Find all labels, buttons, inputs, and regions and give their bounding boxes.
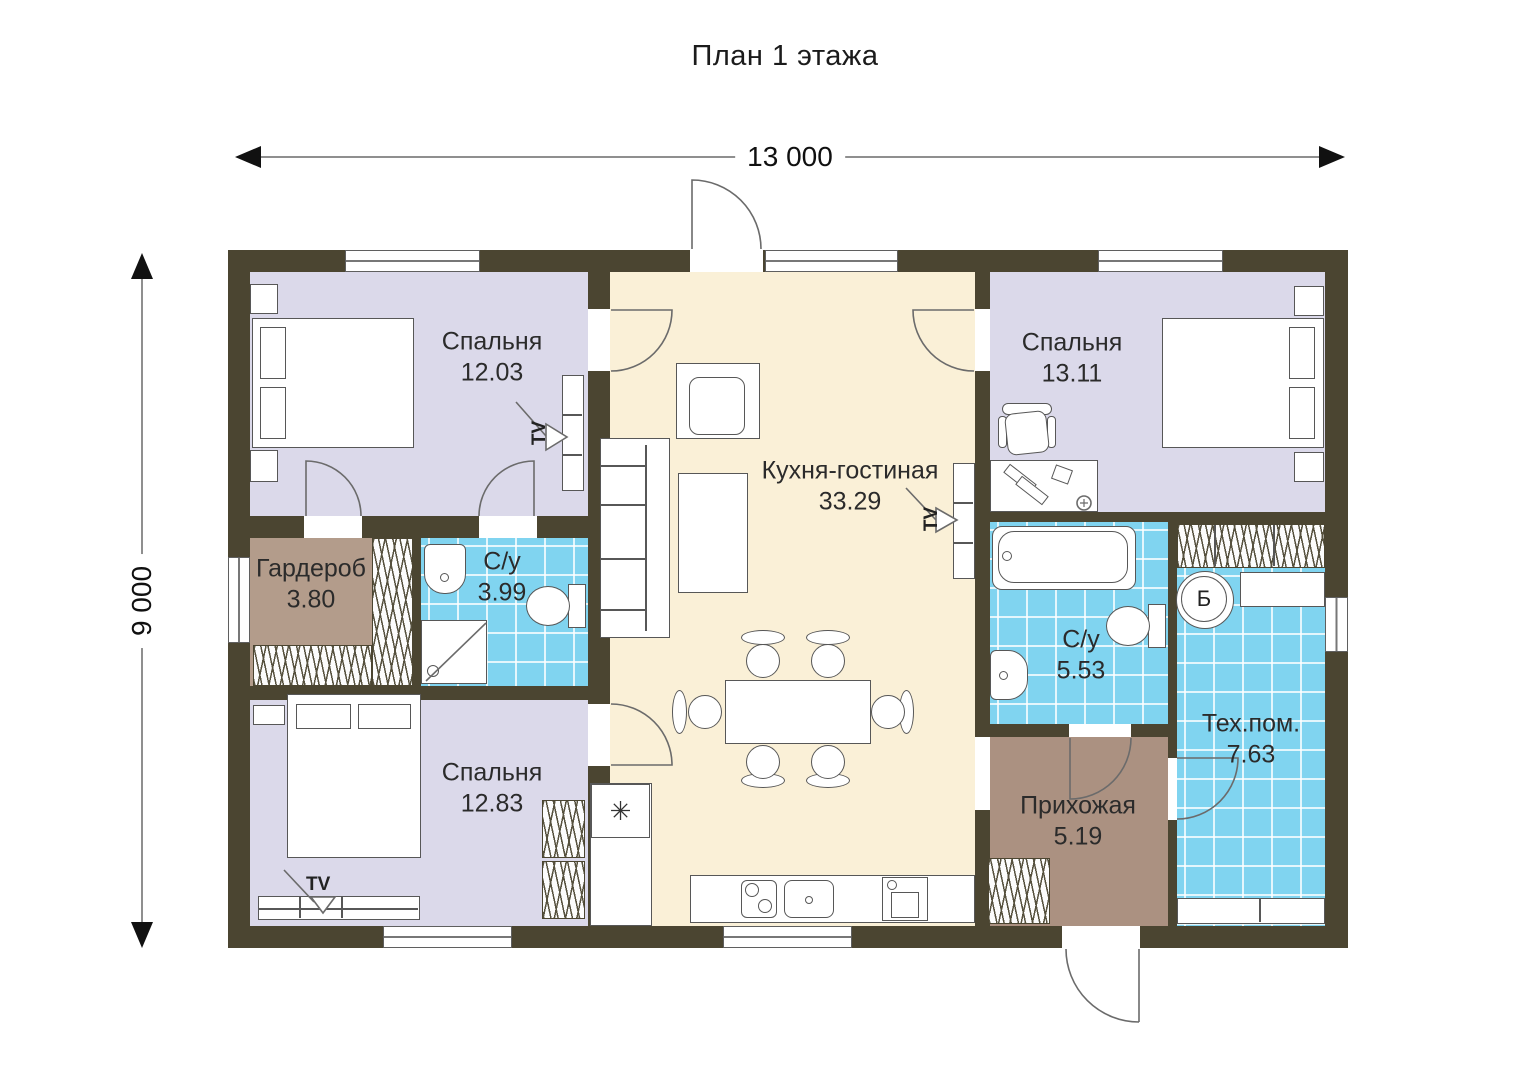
- door-opening: [479, 516, 537, 538]
- pillow: [1289, 327, 1315, 379]
- door-opening: [1069, 724, 1131, 737]
- oven-icon: [882, 877, 928, 921]
- sink-drain: [999, 671, 1008, 680]
- desk-icon: [990, 460, 1098, 512]
- pillow: [260, 327, 286, 379]
- toilet-tank: [1148, 604, 1166, 648]
- room-area: 33.29: [762, 486, 939, 517]
- room-name: Тех.пом.: [1202, 709, 1300, 740]
- tv-label: TV: [529, 421, 551, 445]
- room-name: С/у: [1057, 625, 1106, 656]
- room-name: Спальня: [1022, 328, 1122, 359]
- shelf-line: [299, 897, 301, 918]
- shelf-line: [341, 897, 343, 918]
- room-label-tech: Тех.пом. 7.63: [1202, 709, 1300, 770]
- dining-table: [725, 680, 871, 744]
- dining-chair: [871, 695, 905, 729]
- pillow: [296, 704, 351, 729]
- window: [765, 250, 898, 272]
- room-label-bathroom-large: С/у 5.53: [1057, 625, 1106, 686]
- pillow: [358, 704, 411, 729]
- sofa-line: [601, 465, 645, 467]
- tv-unit: [562, 375, 584, 491]
- shelf-line: [563, 414, 582, 416]
- room-name: Спальня: [442, 758, 542, 789]
- door-opening: [1062, 926, 1140, 948]
- room-name: Гардероб: [256, 554, 366, 585]
- window: [723, 926, 852, 948]
- plan-title: План 1 этажа: [692, 40, 879, 73]
- room-name: С/у: [478, 547, 527, 578]
- sink-icon: [990, 650, 1028, 700]
- sofa-line: [601, 609, 645, 611]
- door-opening: [304, 516, 362, 538]
- tv-label: TV: [306, 874, 330, 896]
- bathtub-icon: [992, 526, 1136, 590]
- tv-unit: [953, 463, 975, 579]
- counter: [1240, 572, 1325, 607]
- closet-divider: [1214, 525, 1216, 566]
- bathtub-faucet: [1002, 551, 1012, 561]
- nightstand: [1294, 452, 1324, 482]
- bed-icon: [287, 694, 421, 858]
- arrow-down-icon: [131, 922, 153, 948]
- room-name: Кухня-гостиная: [762, 456, 939, 487]
- door-opening: [690, 250, 763, 272]
- burner: [745, 883, 759, 897]
- room-name: Прихожая: [1020, 791, 1136, 822]
- dimension-height: 9 000: [127, 253, 157, 948]
- room-label-wardrobe: Гардероб 3.80: [256, 554, 366, 615]
- sink-drain: [440, 573, 449, 582]
- door-opening: [975, 309, 990, 371]
- room-area: 3.80: [256, 584, 366, 615]
- closet-rail-icon: [988, 858, 1050, 924]
- room-area: 3.99: [478, 577, 527, 608]
- oven-door: [891, 892, 919, 918]
- room-area: 5.19: [1020, 821, 1136, 852]
- sofa-line: [601, 558, 645, 560]
- window: [383, 926, 512, 948]
- nightstand: [253, 705, 285, 725]
- toilet-icon: [526, 586, 570, 626]
- window: [1098, 250, 1223, 272]
- door-opening: [588, 309, 610, 371]
- bed-icon: [252, 318, 414, 448]
- chair-back: [741, 630, 785, 645]
- shelf-line: [954, 502, 973, 504]
- closet-rail-icon: [253, 645, 372, 686]
- kitchen-counter: ✳: [590, 783, 652, 926]
- chair-back: [806, 630, 850, 645]
- arrow-right-icon: [1319, 146, 1345, 168]
- shelf-line: [563, 454, 582, 456]
- dining-chair: [811, 745, 845, 779]
- nightstand: [250, 450, 278, 482]
- desk-item: [1051, 464, 1073, 484]
- shower-drain: [427, 665, 439, 677]
- window: [228, 557, 250, 643]
- cabinet-divider: [1259, 899, 1261, 922]
- tv-stand: [258, 896, 420, 920]
- shelf-line: [954, 542, 973, 544]
- door-opening: [1168, 758, 1177, 820]
- coffee-table: [678, 473, 748, 593]
- room-area: 12.83: [442, 788, 542, 819]
- shelf-line: [259, 908, 418, 910]
- dimension-width: 13 000: [235, 142, 1345, 172]
- cabinet: [1177, 898, 1325, 924]
- shower-icon: [421, 620, 487, 684]
- entry-door-arc: [1066, 949, 1139, 1022]
- room-label-bedroom-bottom-left: Спальня 12.83: [442, 758, 542, 819]
- room-area: 13.11: [1022, 358, 1122, 389]
- boiler-icon: Б: [1176, 571, 1234, 629]
- dining-chair: [688, 695, 722, 729]
- arrow-up-icon: [131, 253, 153, 279]
- passage-opening: [975, 737, 990, 810]
- room-label-bedroom-top-left: Спальня 12.03: [442, 327, 542, 388]
- dimension-width-value: 13 000: [735, 141, 845, 173]
- bathtub-inner: [998, 531, 1128, 583]
- arrow-left-icon: [235, 146, 261, 168]
- kitchen-sink-icon: [784, 880, 834, 918]
- sofa-line: [601, 504, 645, 506]
- dining-chair: [746, 745, 780, 779]
- toilet-tank: [568, 584, 586, 628]
- chair-back: [672, 690, 687, 734]
- kitchen-counter: [690, 875, 975, 923]
- cooktop-icon: [741, 880, 777, 918]
- room-area: 12.03: [442, 357, 542, 388]
- sofa-icon: [600, 438, 670, 638]
- window: [345, 250, 480, 272]
- floor-plan: План 1 этажа 13 000 9 000: [0, 0, 1540, 1080]
- window: [1325, 597, 1348, 652]
- sofa-line: [645, 445, 647, 631]
- dining-chair: [746, 644, 780, 678]
- room-label-bathroom-small: С/у 3.99: [478, 547, 527, 608]
- room-area: 5.53: [1057, 655, 1106, 686]
- bed-icon: [1162, 318, 1324, 448]
- room-area: 7.63: [1202, 739, 1300, 770]
- sink-icon: [424, 544, 466, 594]
- oven-knob: [887, 880, 897, 890]
- door-opening: [588, 704, 610, 766]
- closet-rail-icon: [542, 800, 585, 858]
- nightstand: [1294, 286, 1324, 316]
- sink-drain: [805, 896, 813, 904]
- closet-rail-icon: [542, 861, 585, 919]
- room-label-hallway: Прихожая 5.19: [1020, 791, 1136, 852]
- armchair-icon: [676, 363, 760, 439]
- entry-door-arc: [692, 180, 761, 249]
- armchair-cushion: [689, 377, 745, 435]
- room-label-bedroom-top-right: Спальня 13.11: [1022, 328, 1122, 389]
- fridge-icon: ✳: [591, 784, 650, 838]
- room-name: Спальня: [442, 327, 542, 358]
- dining-chair: [811, 644, 845, 678]
- desk-chair-seat: [1004, 410, 1050, 456]
- closet-rail-icon: [372, 538, 413, 686]
- closet-rail-icon: [1177, 524, 1325, 568]
- burner: [758, 899, 772, 913]
- pillow: [1289, 387, 1315, 439]
- toilet-icon: [1106, 606, 1150, 646]
- dimension-height-value: 9 000: [126, 553, 158, 647]
- nightstand: [250, 284, 278, 314]
- boiler-label: Б: [1181, 576, 1227, 622]
- room-label-kitchen-living: Кухня-гостиная 33.29: [762, 456, 939, 517]
- closet-divider: [1273, 525, 1275, 566]
- pillow: [260, 387, 286, 439]
